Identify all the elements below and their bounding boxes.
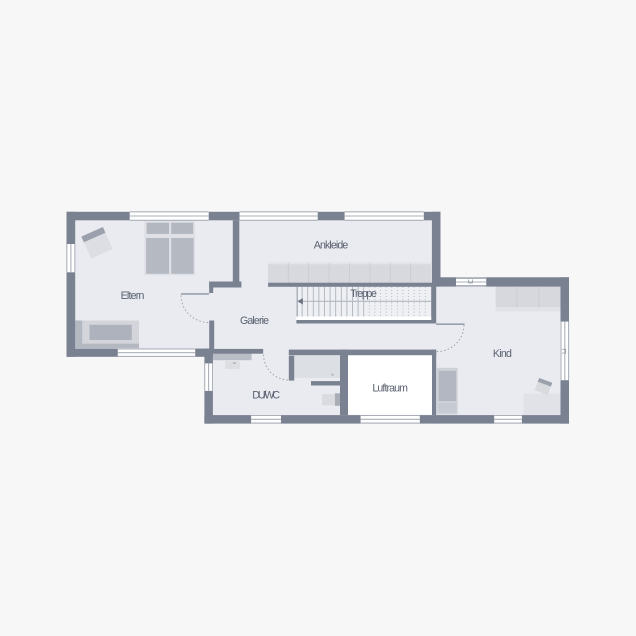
svg-text:Kind: Kind xyxy=(493,348,512,360)
svg-text:Galerie: Galerie xyxy=(240,315,269,327)
svg-text:DU/WC: DU/WC xyxy=(252,389,280,401)
svg-text:Ankleide: Ankleide xyxy=(314,240,349,252)
svg-text:Treppe: Treppe xyxy=(350,288,377,300)
svg-text:Eltern: Eltern xyxy=(121,290,145,302)
svg-text:Luftraum: Luftraum xyxy=(372,382,408,394)
